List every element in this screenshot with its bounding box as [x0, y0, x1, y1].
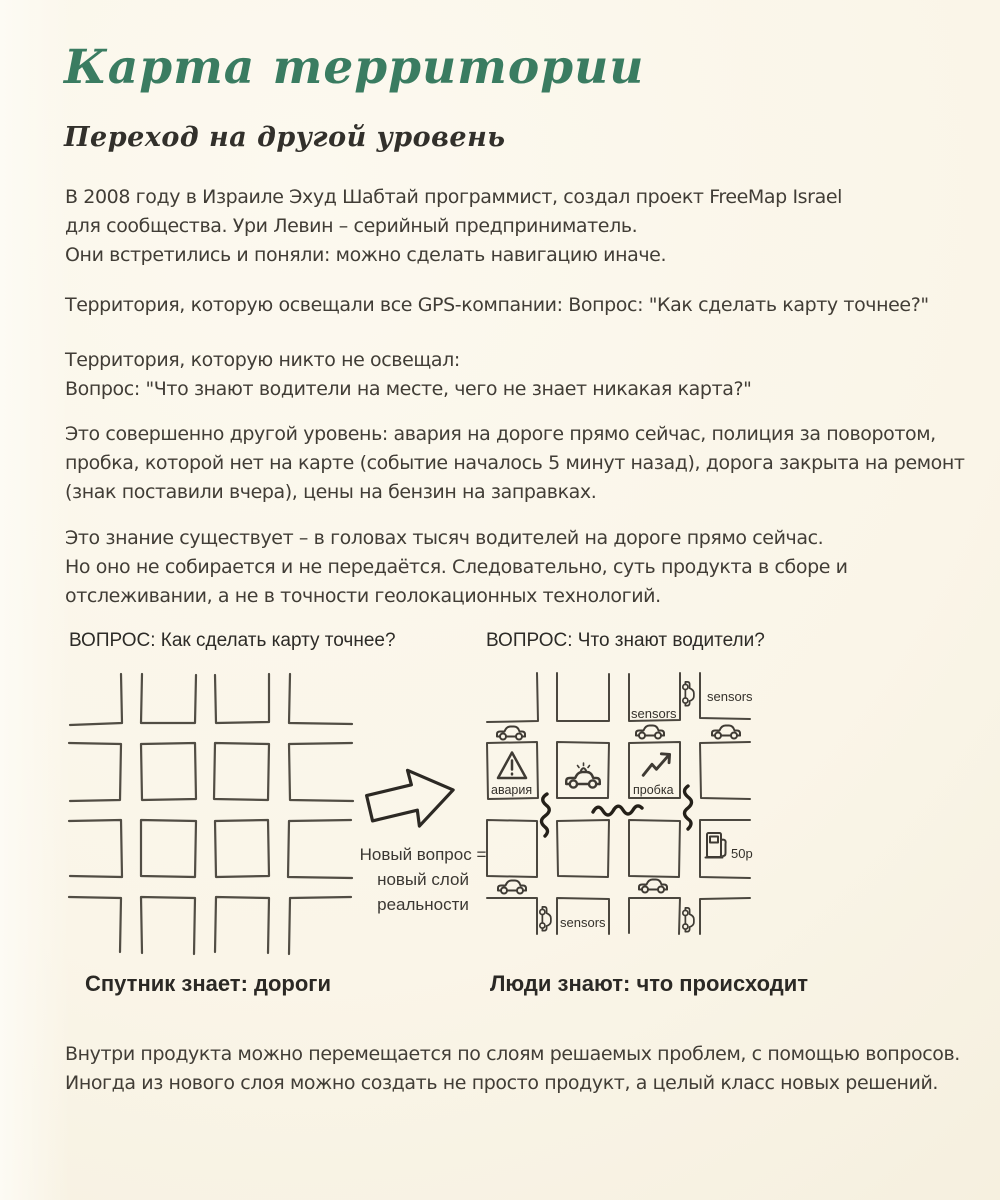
text-line: реальности [348, 892, 498, 917]
car-icon [712, 726, 740, 739]
arrow-caption: Новый вопрос = новый слой реальности [348, 842, 498, 917]
paragraph-territory-unknown: Территория, которую никто не освещал: Во… [65, 346, 752, 404]
sensors-label: sensors [631, 706, 677, 721]
fuel-price-label: 50p [731, 846, 753, 861]
car-icon [639, 880, 667, 893]
paragraph-history: В 2008 году в Израиле Эхуд Шабтай програ… [65, 183, 842, 270]
city-blocks-grid [487, 673, 750, 934]
text-line: для сообщества. Ури Левин – серийный пре… [65, 212, 842, 241]
car-icon [636, 726, 664, 739]
city-blocks-grid [69, 674, 353, 954]
text-line: Территория, которую никто не освещал: [65, 346, 752, 375]
car-icon [497, 727, 525, 740]
text-line: Но оно не собирается и не передаётся. Сл… [65, 553, 848, 582]
text-line: (знак поставили вчера), цены на бензин н… [65, 478, 965, 507]
text-line: Они встретились и поняли: можно сделать … [65, 241, 842, 270]
transition-arrow-icon [362, 752, 472, 844]
diagram-question-left: ВОПРОС: Как сделать карту точнее? [69, 630, 396, 652]
car-icon [683, 682, 694, 706]
text-line: Новый вопрос = [348, 842, 498, 867]
caption-left: Спутник знает: дороги [85, 971, 331, 997]
paragraph-territory-known: Территория, которую освещали все GPS-ком… [65, 291, 929, 320]
text-line: отслеживании, а не в точности геолокацио… [65, 582, 848, 611]
car-icon [683, 908, 694, 932]
police-car-icon [566, 763, 600, 788]
text-line: Иногда из нового слоя можно создать не п… [65, 1069, 960, 1098]
text-line: пробка, которой нет на карте (событие на… [65, 449, 965, 478]
squiggle-mark [593, 806, 642, 815]
sensors-label: sensors [707, 689, 753, 704]
squiggle-mark [542, 794, 550, 836]
squiggle-mark [685, 786, 692, 829]
car-icon [540, 907, 551, 931]
paragraph-other-level: Это совершенно другой уровень: авария на… [65, 420, 965, 507]
text-line: В 2008 году в Израиле Эхуд Шабтай програ… [65, 183, 842, 212]
accident-label: авария [491, 783, 532, 797]
text-line: новый слой [348, 867, 498, 892]
street-grid-diagram [62, 668, 382, 960]
traffic-jam-trend-icon [643, 754, 669, 775]
paragraph-knowledge: Это знание существует – в головах тысяч … [65, 524, 848, 611]
text-line: Это совершенно другой уровень: авария на… [65, 420, 965, 449]
jam-label: пробка [633, 783, 674, 797]
annotated-map-diagram: sensors sensors sensors авария пробка 50… [483, 668, 753, 960]
document-page: Карта территории Переход на другой урове… [0, 0, 1000, 1200]
paragraph-conclusion: Внутри продукта можно перемещается по сл… [65, 1040, 960, 1098]
warning-triangle-icon [498, 753, 526, 779]
text-line: Внутри продукта можно перемещается по сл… [65, 1040, 960, 1069]
text-line: Территория, которую освещали все GPS-ком… [65, 291, 929, 320]
caption-right: Люди знают: что происходит [490, 971, 808, 997]
text-line: Вопрос: "Что знают водители на месте, че… [65, 375, 752, 404]
page-title: Карта территории [64, 40, 644, 95]
text-line: Это знание существует – в головах тысяч … [65, 524, 848, 553]
diagram-question-right: ВОПРОС: Что знают водители? [486, 630, 765, 652]
sensors-label: sensors [560, 915, 606, 930]
car-icon [498, 881, 526, 894]
section-subtitle: Переход на другой уровень [64, 122, 506, 153]
gas-pump-icon [706, 833, 726, 858]
